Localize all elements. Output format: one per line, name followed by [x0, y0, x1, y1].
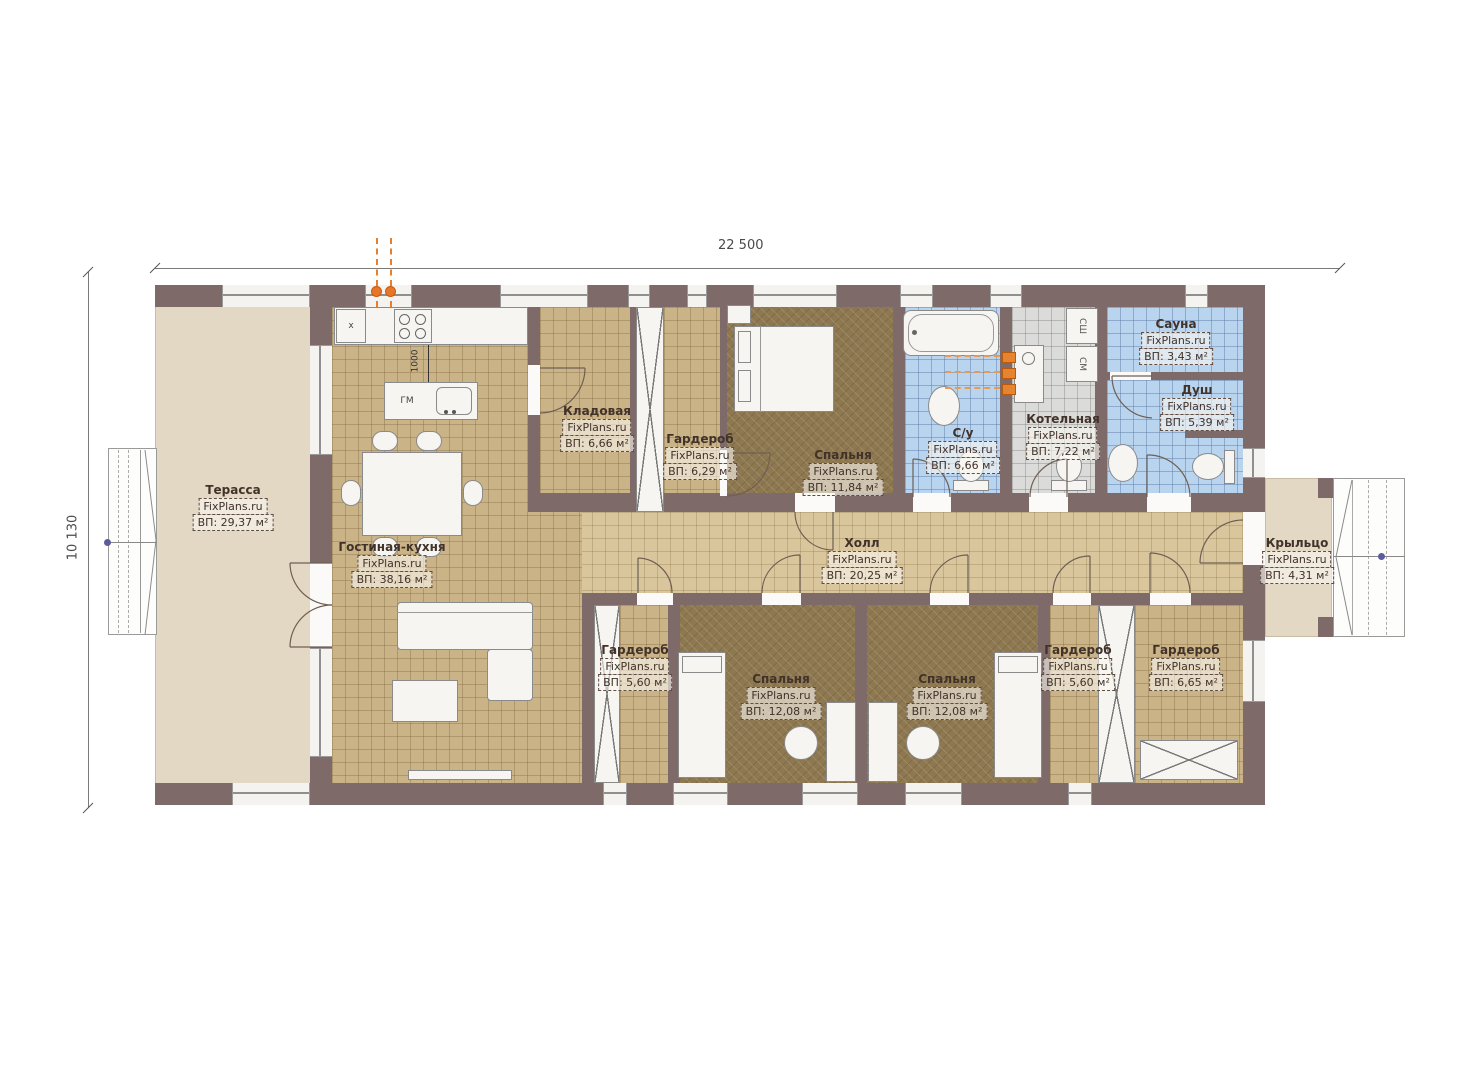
watermark: FixPlans.ru	[600, 658, 669, 675]
watermark: FixPlans.ru	[1141, 332, 1210, 349]
door-entry	[1200, 520, 1243, 563]
room-name: Гостиная-кухня	[338, 540, 445, 554]
room-area: ВП: 6,29 м²	[663, 463, 737, 480]
room-area: ВП: 3,43 м²	[1139, 348, 1213, 365]
label-wardrobe-bl: Гардероб FixPlans.ru ВП: 5,60 м²	[598, 643, 672, 691]
label-bathroom: С/у FixPlans.ru ВП: 6,66 м²	[926, 426, 1000, 474]
watermark: FixPlans.ru	[928, 441, 997, 458]
watermark: FixPlans.ru	[746, 687, 815, 704]
door-wardrobe-bl	[638, 558, 672, 593]
door-arcs-layer	[0, 0, 1474, 1080]
label-storage: Кладовая FixPlans.ru ВП: 6,66 м²	[560, 404, 634, 452]
floor-plan-canvas: 22 500 10 130	[0, 0, 1474, 1080]
door-terrace-leaf-bottom	[290, 605, 332, 647]
room-name: Котельная	[1026, 412, 1100, 426]
room-area: ВП: 12,08 м²	[741, 703, 822, 720]
dimension-tick	[83, 803, 93, 813]
room-name: С/у	[952, 426, 973, 440]
door-boiler	[1030, 459, 1067, 497]
watermark: FixPlans.ru	[198, 498, 267, 515]
door-bedroom1	[762, 555, 800, 593]
watermark: FixPlans.ru	[808, 463, 877, 480]
door-bedroom2	[930, 555, 968, 593]
room-area: ВП: 4,31 м²	[1260, 567, 1334, 584]
watermark: FixPlans.ru	[1262, 551, 1331, 568]
dimension-tick	[83, 267, 93, 277]
room-name: Кладовая	[563, 404, 631, 418]
terrace-steps-diagonals	[145, 450, 156, 635]
room-area: ВП: 6,65 м²	[1149, 674, 1223, 691]
label-bedroom-master: Спальня FixPlans.ru ВП: 11,84 м²	[803, 448, 884, 496]
watermark: FixPlans.ru	[562, 419, 631, 436]
label-hall: Холл FixPlans.ru ВП: 20,25 м²	[822, 536, 903, 584]
watermark: FixPlans.ru	[1028, 427, 1097, 444]
room-name: Терасса	[205, 483, 260, 497]
room-area: ВП: 5,60 м²	[1041, 674, 1115, 691]
room-area: ВП: 6,66 м²	[926, 457, 1000, 474]
room-area: ВП: 12,08 м²	[907, 703, 988, 720]
watermark: FixPlans.ru	[912, 687, 981, 704]
watermark: FixPlans.ru	[357, 555, 426, 572]
label-terrace: Терасса FixPlans.ru ВП: 29,37 м²	[193, 483, 274, 531]
room-name: Спальня	[918, 672, 976, 686]
watermark: FixPlans.ru	[1043, 658, 1112, 675]
room-name: Холл	[844, 536, 879, 550]
room-name: Гардероб	[666, 432, 733, 446]
door-sauna	[1112, 376, 1152, 418]
room-name: Гардероб	[1152, 643, 1219, 657]
room-name: Сауна	[1155, 317, 1196, 331]
label-boiler: Котельная FixPlans.ru ВП: 7,22 м²	[1026, 412, 1100, 460]
label-wardrobe-top: Гардероб FixPlans.ru ВП: 6,29 м²	[663, 432, 737, 480]
label-bedroom-1: Спальня FixPlans.ru ВП: 12,08 м²	[741, 672, 822, 720]
label-bedroom-2: Спальня FixPlans.ru ВП: 12,08 м²	[907, 672, 988, 720]
room-area: ВП: 38,16 м²	[352, 571, 433, 588]
door-terrace-leaf-top	[290, 563, 332, 605]
room-name: Спальня	[814, 448, 872, 462]
watermark: FixPlans.ru	[1162, 398, 1231, 415]
door-shower	[1147, 455, 1190, 497]
watermark: FixPlans.ru	[827, 551, 896, 568]
label-porch: Крыльцо FixPlans.ru ВП: 4,31 м²	[1260, 536, 1334, 584]
room-area: ВП: 5,60 м²	[598, 674, 672, 691]
dimension-tick	[1335, 263, 1345, 273]
watermark: FixPlans.ru	[665, 447, 734, 464]
label-wardrobe-br1: Гардероб FixPlans.ru ВП: 5,60 м²	[1041, 643, 1115, 691]
room-name: Гардероб	[1044, 643, 1111, 657]
room-name: Спальня	[752, 672, 810, 686]
label-shower: Душ FixPlans.ru ВП: 5,39 м²	[1160, 383, 1234, 431]
dimension-tick	[150, 263, 160, 273]
room-name: Гардероб	[601, 643, 668, 657]
room-name: Крыльцо	[1266, 536, 1329, 550]
door-wardrobe-br2	[1150, 553, 1190, 593]
label-sauna: Сауна FixPlans.ru ВП: 3,43 м²	[1139, 317, 1213, 365]
label-wardrobe-br2: Гардероб FixPlans.ru ВП: 6,65 м²	[1149, 643, 1223, 691]
room-area: ВП: 7,22 м²	[1026, 443, 1100, 460]
room-name: Душ	[1181, 383, 1212, 397]
room-area: ВП: 6,66 м²	[560, 435, 634, 452]
label-living-kitchen: Гостиная-кухня FixPlans.ru ВП: 38,16 м²	[338, 540, 445, 588]
room-area: ВП: 11,84 м²	[803, 479, 884, 496]
porch-steps-diagonals	[1336, 480, 1352, 635]
door-wardrobe-br1	[1053, 556, 1090, 593]
room-area: ВП: 29,37 м²	[193, 514, 274, 531]
watermark: FixPlans.ru	[1151, 658, 1220, 675]
room-area: ВП: 20,25 м²	[822, 567, 903, 584]
room-area: ВП: 5,39 м²	[1160, 414, 1234, 431]
